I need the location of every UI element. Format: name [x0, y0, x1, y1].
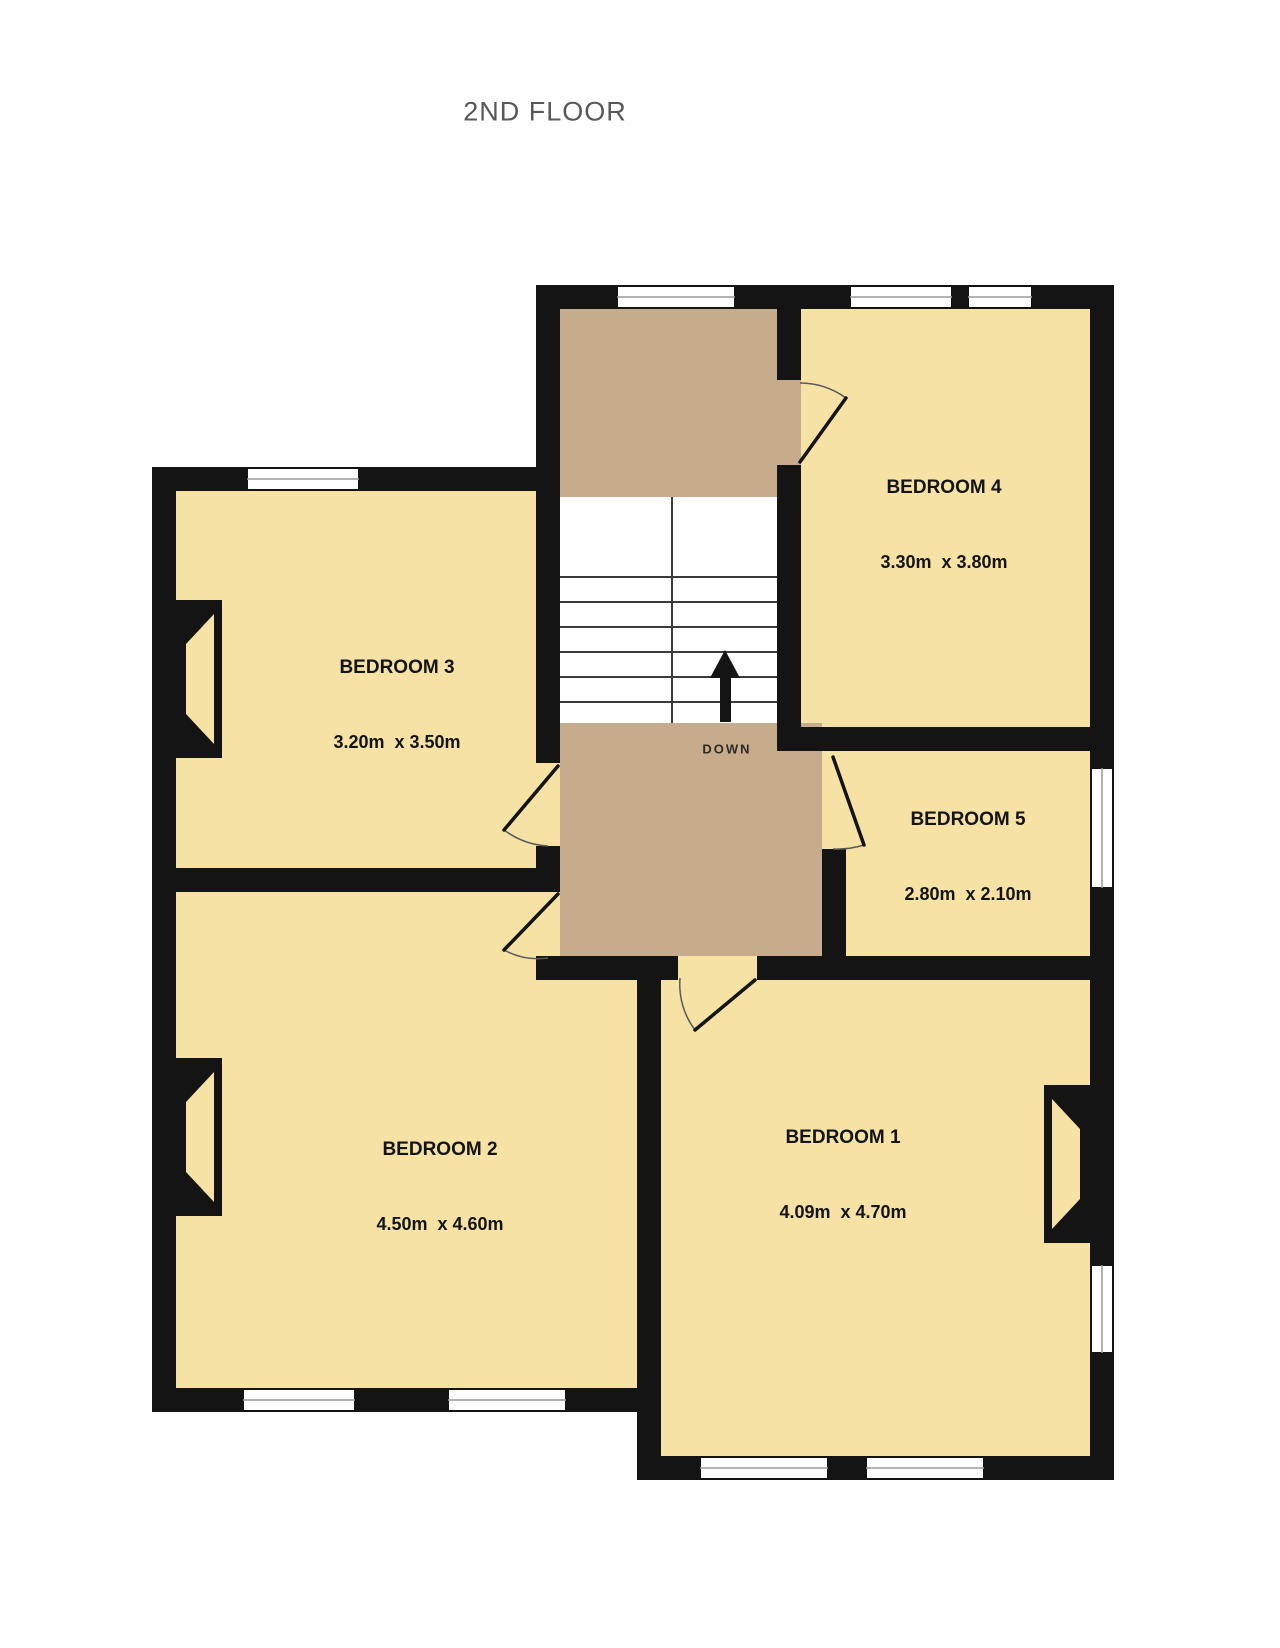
- window-stair-top: [617, 286, 735, 308]
- window-bedroom2-bottom-1: [243, 1389, 355, 1411]
- stairs-down-label: DOWN: [702, 742, 751, 757]
- bedroom-1-fireplace: [1044, 1085, 1090, 1243]
- bedroom-5-threshold: [822, 751, 846, 849]
- wall-bed4-west-lower: [777, 465, 801, 727]
- upper-landing-floor: [560, 309, 777, 497]
- bedroom-1-label: BEDROOM 1 4.09m x 4.70m: [779, 1075, 906, 1275]
- wall-bedroom2-bottom: [152, 1388, 661, 1412]
- floor-plan-page: 2ND FLOOR BEDROOM 3 3.20m x 3.50m BEDROO…: [0, 0, 1280, 1648]
- room-name: BEDROOM 3: [333, 655, 460, 680]
- room-dimensions: 2.80m x 2.10m: [904, 882, 1031, 907]
- window-bedroom3-top: [247, 468, 359, 490]
- wall-bed5-bed1-divider: [757, 956, 1114, 980]
- window-bedroom1-right: [1091, 1265, 1113, 1353]
- bedroom-4-label: BEDROOM 4 3.30m x 3.80m: [880, 425, 1007, 625]
- window-bedroom2-bottom-2: [448, 1389, 566, 1411]
- bedroom-2-fireplace: [176, 1058, 222, 1216]
- window-bedroom4-top-1: [850, 286, 952, 308]
- room-dimensions: 4.09m x 4.70m: [779, 1200, 906, 1225]
- bedroom-1-threshold: [678, 956, 757, 980]
- bedroom-3-fireplace: [176, 600, 222, 758]
- bedroom-3-label: BEDROOM 3 3.20m x 3.50m: [333, 605, 460, 805]
- room-name: BEDROOM 1: [779, 1125, 906, 1150]
- room-name: BEDROOM 5: [904, 807, 1031, 832]
- window-bedroom5-right: [1091, 768, 1113, 888]
- wall-bed5-west-stub: [822, 849, 846, 956]
- wall-bed4-bottom: [777, 727, 1114, 751]
- floor-title: 2ND FLOOR: [463, 97, 627, 128]
- wall-bed4-west-upper: [777, 309, 801, 380]
- window-bedroom1-bottom-2: [866, 1457, 984, 1479]
- room-dimensions: 3.30m x 3.80m: [880, 550, 1007, 575]
- staircase: [560, 497, 777, 723]
- lower-landing-floor: [560, 723, 822, 958]
- wall-bed2-bed1-divider: [637, 956, 661, 1480]
- room-dimensions: 4.50m x 4.60m: [376, 1212, 503, 1237]
- room-name: BEDROOM 4: [880, 475, 1007, 500]
- wall-left-outer: [152, 467, 176, 1412]
- bedroom-4-threshold: [777, 380, 801, 465]
- room-name: BEDROOM 2: [376, 1137, 503, 1162]
- window-bedroom4-top-2: [968, 286, 1032, 308]
- wall-stair-west-upper: [536, 285, 560, 763]
- window-bedroom1-bottom-1: [700, 1457, 828, 1479]
- stairwell-floor: [560, 497, 777, 723]
- floor-plan-svg: [0, 0, 1280, 1648]
- bedroom-2-label: BEDROOM 2 4.50m x 4.60m: [376, 1087, 503, 1287]
- wall-bed3-bed2-divider: [152, 868, 560, 892]
- room-dimensions: 3.20m x 3.50m: [333, 730, 460, 755]
- bedroom-5-label: BEDROOM 5 2.80m x 2.10m: [904, 757, 1031, 957]
